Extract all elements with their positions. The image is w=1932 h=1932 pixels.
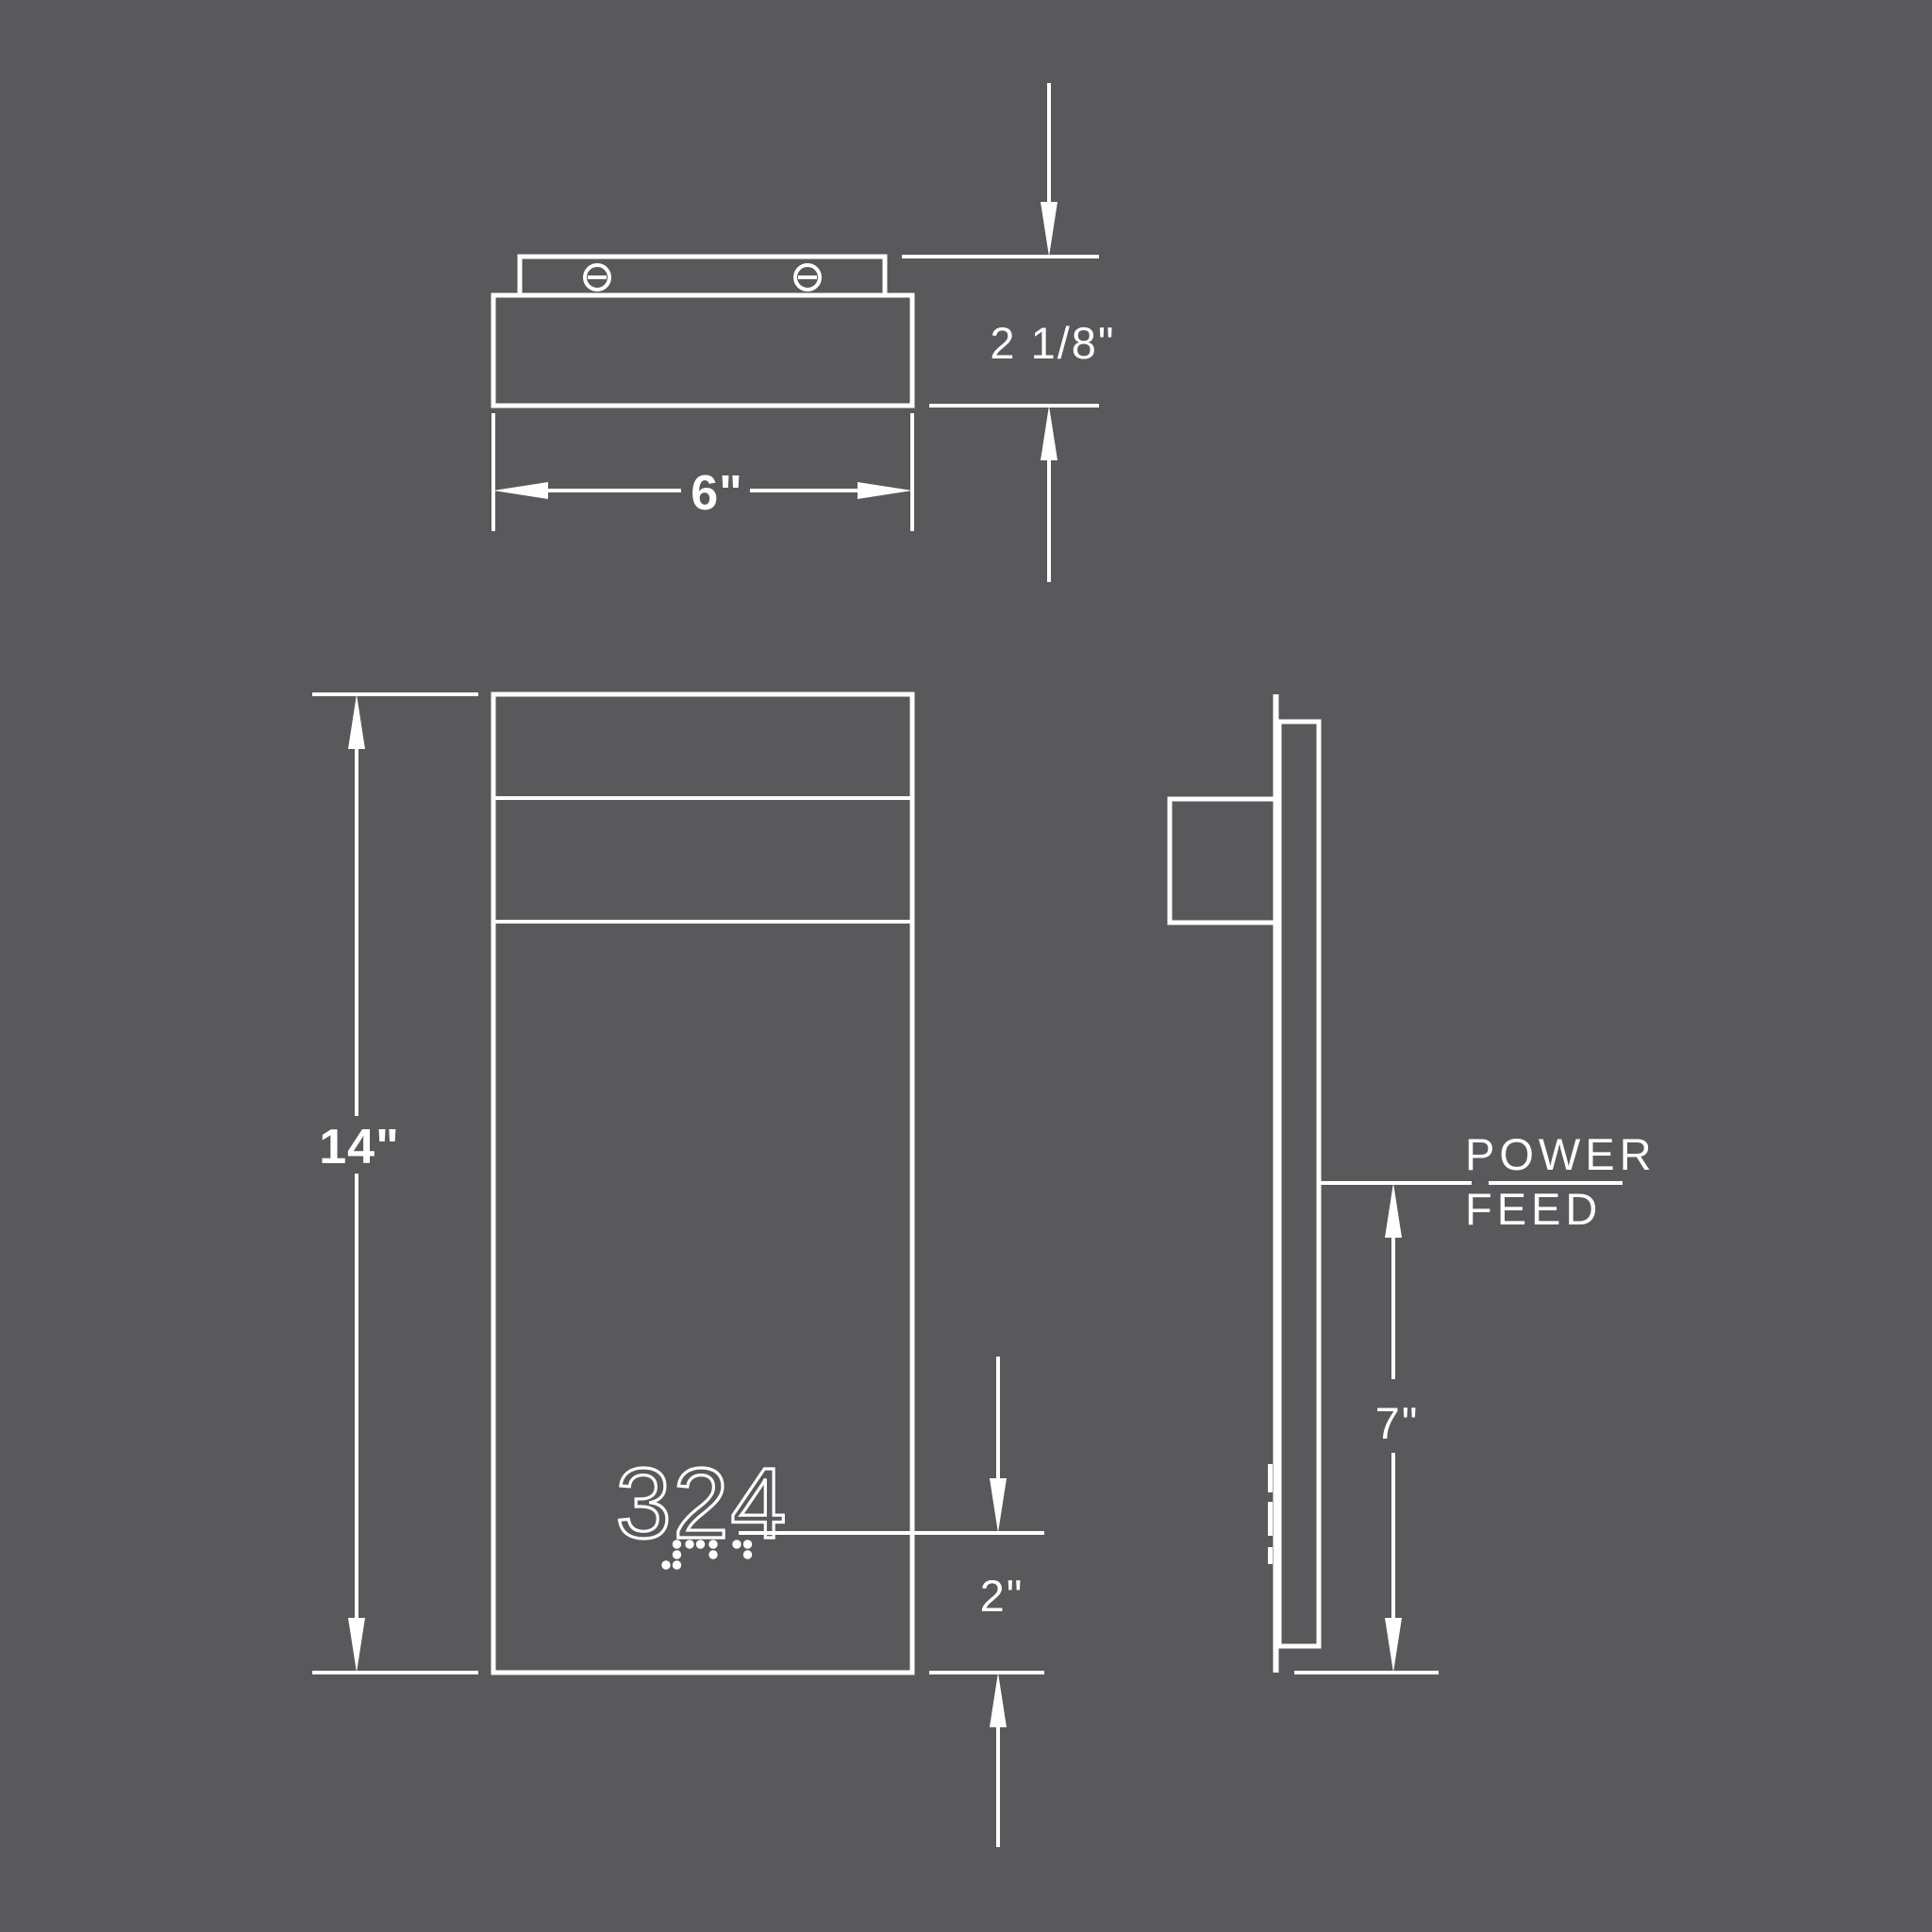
braille-dot [732,1540,741,1548]
dimension-number-offset: 2" [739,1357,1044,1847]
arrow-right-icon [858,482,912,499]
front-view: 324 [493,694,912,1673]
arrow-up-icon [990,1673,1007,1727]
arrow-down-icon [1041,202,1058,257]
top-view-body [493,295,912,406]
dimension-height: 14" [312,694,478,1673]
braille-dot [673,1550,681,1558]
screw-icon-left [585,265,609,290]
dimension-drawing: 2 1/8" 6" 324 14" 2" [0,0,1932,1932]
height-dimension-label: 14" [319,1120,400,1174]
arrow-up-icon [348,694,365,749]
top-view-mounting-plate [520,257,885,295]
arrow-up-icon [1041,406,1058,460]
braille-dot [708,1550,717,1558]
braille-dot [743,1550,752,1558]
number-offset-label: 2" [980,1571,1024,1621]
side-view-back-assembly [1279,722,1319,1646]
side-view [1170,694,1319,1673]
arrow-down-icon [348,1618,365,1673]
braille-dot [696,1540,705,1548]
power-feed-label-line2: FEED [1465,1184,1602,1234]
dimension-feed-height: 7" [1294,1183,1439,1673]
braille-dot [708,1540,717,1548]
arrow-down-icon [1385,1618,1402,1673]
screw-icon-right [795,265,820,290]
depth-dimension-label: 2 1/8" [990,318,1115,368]
side-view-insert-window [1170,799,1275,923]
top-view [493,257,912,406]
width-dimension-label: 6" [691,466,743,521]
power-feed-label-line1: POWER [1465,1129,1657,1179]
dimension-depth: 2 1/8" [902,83,1116,582]
dimension-width: 6" [493,413,912,531]
arrow-up-icon [1385,1183,1402,1238]
braille-dot [673,1560,681,1569]
braille-dot [661,1560,670,1569]
power-feed-callout: POWER FEED [1319,1129,1657,1234]
side-view-tactile-profile [1268,1464,1273,1564]
arrow-down-icon [990,1478,1007,1533]
braille-dot [743,1540,752,1548]
arrow-left-icon [493,482,548,499]
braille-dot [673,1540,681,1548]
braille-dot [685,1540,693,1548]
feed-height-label: 7" [1375,1398,1420,1448]
